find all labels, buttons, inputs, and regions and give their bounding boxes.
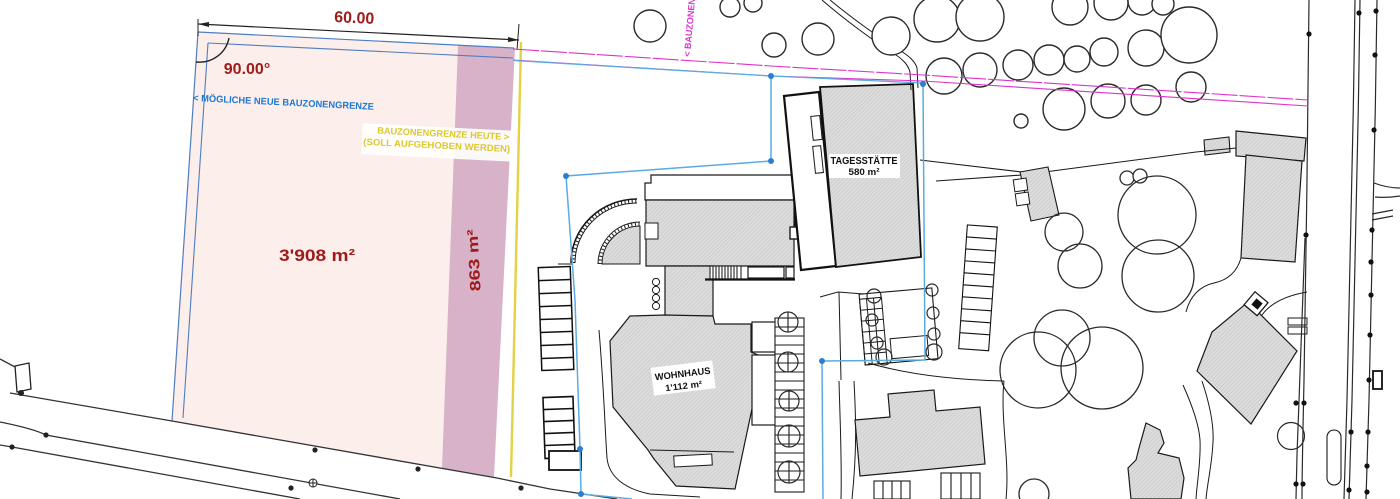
svg-text:863 m²: 863 m² [464,229,484,292]
svg-text:3'908 m²: 3'908 m² [279,247,356,265]
svg-text:90.00°: 90.00° [224,61,270,78]
svg-text:TAGESSTÄTTE: TAGESSTÄTTE [831,154,898,167]
svg-text:< BAUZONENGRENZE: < BAUZONENGRENZE [682,0,700,57]
svg-text:580 m²: 580 m² [849,167,880,178]
svg-text:60.00: 60.00 [334,9,375,28]
